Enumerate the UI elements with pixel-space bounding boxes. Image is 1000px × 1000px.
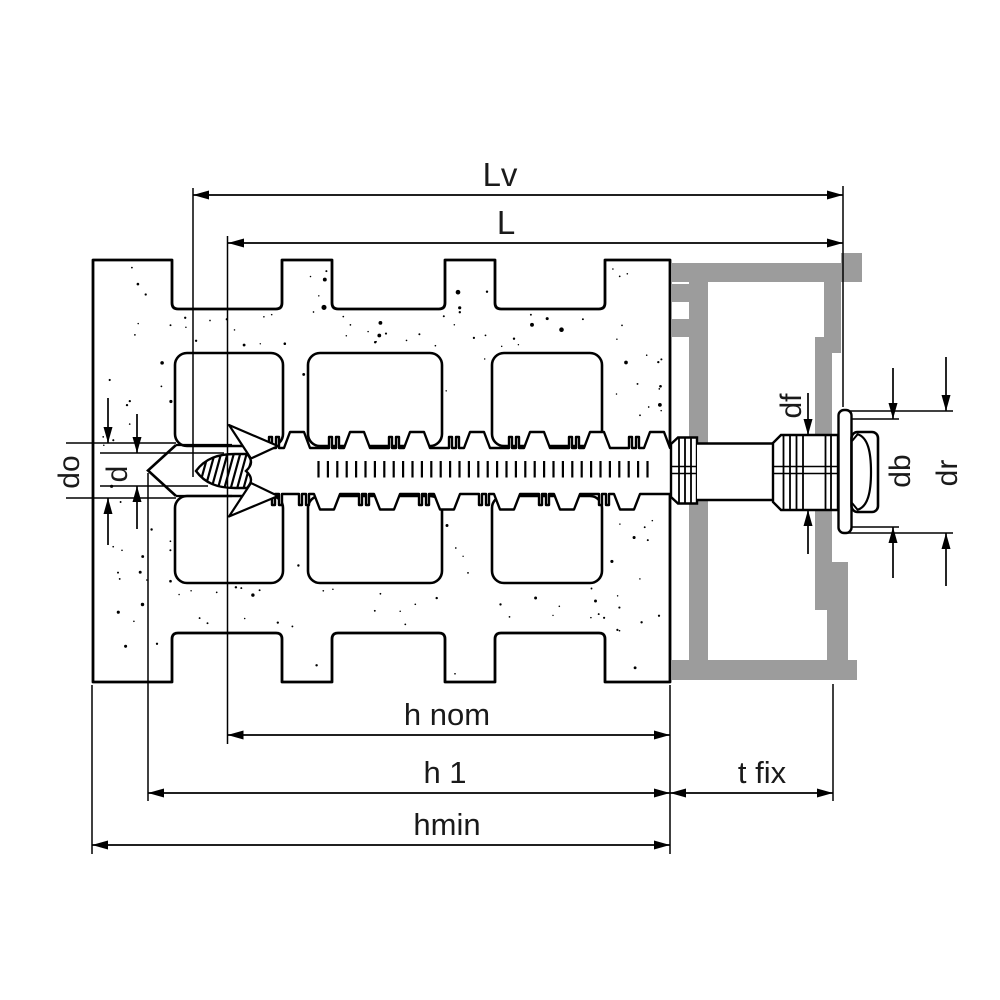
- speckle-dot: [485, 335, 487, 337]
- speckle-dot: [445, 390, 446, 391]
- speckle-dot: [129, 400, 131, 402]
- speckle-dot: [240, 587, 242, 589]
- speckle-dot: [559, 606, 561, 608]
- speckle-dot: [619, 276, 621, 278]
- screw-washer: [839, 410, 852, 533]
- speckle-dot: [501, 346, 502, 347]
- speckle-dot: [406, 340, 408, 342]
- speckle-dot: [582, 318, 584, 320]
- frame-right-wall-above-screw: [815, 353, 832, 437]
- dimension-arrowhead: [804, 510, 813, 526]
- speckle-dot: [346, 335, 348, 337]
- speckle-dot: [399, 611, 401, 613]
- speckle-dot: [509, 616, 511, 618]
- speckle-dot: [639, 414, 641, 416]
- speckle-dot: [169, 549, 171, 551]
- brick-cell: [175, 496, 283, 583]
- screw-hex-head: [852, 432, 879, 512]
- speckle-dot: [150, 528, 152, 530]
- speckle-dot: [418, 333, 420, 335]
- speckle-dot: [627, 273, 629, 275]
- speckle-dot: [660, 410, 662, 412]
- speckle-dot: [119, 578, 121, 580]
- plug-smooth-shaft: [697, 444, 774, 501]
- speckle-dot: [612, 268, 614, 270]
- speckle-dot: [325, 270, 327, 272]
- speckle-dot: [216, 592, 218, 594]
- speckle-dot: [185, 327, 187, 329]
- speckle-dot: [291, 625, 293, 627]
- speckle-dot: [318, 295, 319, 296]
- speckle-dot: [131, 267, 133, 269]
- speckle-dot: [458, 306, 461, 309]
- speckle-dot: [598, 613, 600, 615]
- speckle-dot: [436, 597, 438, 599]
- dimension-arrowhead: [654, 789, 670, 798]
- speckle-dot: [379, 321, 383, 325]
- speckle-dot: [404, 624, 406, 626]
- dimension-arrowhead: [817, 789, 833, 798]
- speckle-dot: [117, 611, 120, 614]
- speckle-dot: [244, 618, 246, 620]
- speckle-dot: [160, 361, 164, 365]
- speckle-dot: [109, 379, 111, 381]
- speckle-dot: [284, 342, 287, 345]
- speckle-dot: [126, 404, 128, 406]
- dimension-label: dr: [931, 460, 964, 487]
- speckle-dot: [170, 540, 172, 542]
- speckle-dot: [178, 594, 180, 596]
- dimension-arrowhead: [92, 841, 108, 850]
- speckle-dot: [552, 615, 553, 616]
- speckle-dot: [618, 607, 620, 609]
- dimension-label: hmin: [413, 807, 480, 842]
- speckle-dot: [117, 572, 119, 574]
- speckle-dot: [454, 324, 456, 326]
- speckle-dot: [624, 361, 628, 365]
- speckle-dot: [594, 600, 597, 603]
- speckle-dot: [170, 324, 172, 326]
- speckle-dot: [184, 317, 186, 319]
- speckle-dot: [112, 439, 114, 441]
- frame-left-tab: [672, 319, 689, 337]
- speckle-dot: [377, 334, 381, 338]
- speckle-dot: [634, 666, 637, 669]
- speckle-dot: [639, 578, 641, 580]
- speckle-dot: [621, 325, 623, 327]
- dimension-label: h 1: [423, 755, 466, 790]
- speckle-dot: [310, 276, 312, 278]
- speckle-dot: [243, 344, 246, 347]
- frame-top-end-flange: [841, 253, 862, 282]
- speckle-dot: [619, 523, 620, 524]
- speckle-dot: [141, 555, 144, 558]
- frame-right-step: [815, 337, 841, 353]
- speckle-dot: [414, 603, 416, 605]
- speckle-dot: [616, 393, 618, 395]
- speckle-dot: [454, 673, 456, 675]
- dimension-arrowhead: [889, 527, 898, 543]
- speckle-dot: [350, 324, 352, 326]
- speckle-dot: [367, 331, 368, 332]
- speckle-dot: [546, 317, 549, 320]
- speckle-dot: [616, 629, 618, 631]
- frame-left-tab: [672, 284, 689, 302]
- speckle-dot: [112, 546, 114, 548]
- speckle-dot: [263, 316, 265, 318]
- speckle-dot: [658, 388, 660, 390]
- frame-top-bar: [672, 263, 862, 282]
- speckle-dot: [129, 423, 131, 425]
- speckle-dot: [455, 547, 457, 549]
- frame-bottom-bar: [672, 660, 857, 680]
- speckle-dot: [616, 338, 617, 339]
- speckle-dot: [156, 643, 158, 645]
- dimension-arrowhead: [942, 395, 951, 411]
- speckle-dot: [446, 524, 449, 527]
- dimension-arrowhead: [827, 191, 843, 200]
- dimension-label: L: [497, 204, 515, 241]
- speckle-dot: [124, 645, 127, 648]
- frame-right-block: [815, 562, 848, 610]
- speckle-dot: [133, 621, 135, 623]
- speckle-dot: [260, 343, 261, 344]
- speckle-dot: [652, 520, 654, 522]
- brick-cell: [175, 353, 283, 446]
- dimension-label: do: [53, 455, 86, 488]
- speckle-dot: [499, 603, 501, 605]
- speckle-dot: [161, 386, 163, 388]
- speckle-dot: [473, 337, 475, 339]
- dimension-arrowhead: [654, 841, 670, 850]
- dimension-label: h nom: [404, 697, 490, 732]
- speckle-dot: [646, 354, 648, 356]
- dimension-label: t fix: [738, 755, 787, 790]
- speckle-dot: [380, 593, 382, 595]
- speckle-dot: [342, 316, 344, 318]
- dimension-arrowhead: [228, 731, 244, 740]
- speckle-dot: [467, 572, 469, 574]
- speckle-dot: [435, 345, 437, 347]
- speckle-dot: [271, 314, 273, 316]
- dimension-label: d: [101, 466, 134, 483]
- dimension-arrowhead: [148, 789, 164, 798]
- anchor-installation-drawing: LvLh nomh 1t fixhmindoddfdbdr: [0, 0, 1000, 1000]
- speckle-dot: [234, 329, 236, 331]
- dimension-arrowhead: [670, 789, 686, 798]
- speckle-dot: [443, 315, 445, 317]
- speckle-dot: [658, 403, 662, 407]
- speckle-dot: [659, 385, 662, 388]
- speckle-dot: [484, 358, 485, 359]
- speckle-dot: [321, 305, 326, 310]
- speckle-dot: [137, 283, 140, 286]
- speckle-dot: [103, 445, 105, 447]
- speckle-dot: [141, 603, 144, 606]
- speckle-dot: [637, 383, 639, 385]
- speckle-dot: [603, 617, 605, 619]
- speckle-dot: [385, 333, 387, 335]
- brick-cell: [492, 353, 602, 446]
- speckle-dot: [647, 539, 649, 541]
- speckle-dot: [530, 314, 532, 316]
- speckle-dot: [633, 536, 636, 539]
- speckle-dot: [518, 344, 519, 345]
- speckle-dot: [534, 597, 537, 600]
- speckle-dot: [559, 327, 564, 332]
- speckle-dot: [591, 588, 593, 590]
- speckle-dot: [322, 590, 324, 592]
- speckle-dot: [199, 617, 201, 619]
- speckle-dot: [313, 311, 315, 313]
- speckle-dot: [459, 311, 461, 313]
- speckle-dot: [590, 617, 592, 619]
- speckle-dot: [190, 590, 192, 592]
- speckle-dot: [277, 621, 279, 623]
- speckle-dot: [610, 560, 613, 563]
- speckle-dot: [332, 589, 334, 591]
- speckle-dot: [644, 526, 646, 528]
- speckle-dot: [640, 621, 642, 623]
- speckle-dot: [259, 589, 261, 591]
- speckle-dot: [302, 373, 305, 376]
- speckle-dot: [530, 323, 534, 327]
- speckle-dot: [617, 595, 618, 596]
- dimension-arrowhead: [654, 731, 670, 740]
- speckle-dot: [251, 593, 254, 596]
- speckle-dot: [235, 586, 237, 588]
- speckle-dot: [169, 400, 172, 403]
- speckle-dot: [134, 334, 136, 336]
- drawing-canvas: LvLh nomh 1t fixhmindoddfdbdr: [0, 0, 1000, 1000]
- speckle-dot: [209, 320, 211, 322]
- speckle-dot: [462, 556, 463, 557]
- speckle-dot: [374, 341, 376, 343]
- speckle-dot: [323, 278, 327, 282]
- speckle-dot: [120, 501, 122, 503]
- speckle-dot: [513, 338, 515, 340]
- frame-right-foot: [827, 610, 848, 662]
- plug-collar: [671, 438, 697, 504]
- speckle-dot: [374, 610, 376, 612]
- speckle-dot: [658, 615, 660, 617]
- speckle-dot: [139, 571, 142, 574]
- speckle-dot: [456, 290, 461, 295]
- speckle-dot: [657, 361, 659, 363]
- speckle-dot: [102, 436, 104, 438]
- speckle-dot: [486, 291, 488, 293]
- dimension-arrowhead: [193, 191, 209, 200]
- speckle-dot: [121, 550, 123, 552]
- dimension-arrowhead: [827, 239, 843, 248]
- dimension-label: Lv: [483, 156, 518, 193]
- frame-right-wall-below-screw: [815, 511, 832, 562]
- speckle-dot: [660, 358, 662, 360]
- dimension-arrowhead: [942, 533, 951, 549]
- speckle-dot: [297, 564, 299, 566]
- speckle-dot: [315, 664, 317, 666]
- speckle-dot: [169, 580, 172, 583]
- speckle-dot: [145, 293, 147, 295]
- dimension-label: db: [884, 454, 917, 487]
- speckle-dot: [137, 323, 138, 324]
- dimension-arrowhead: [804, 419, 813, 435]
- speckle-dot: [207, 622, 209, 624]
- speckle-dot: [195, 340, 197, 342]
- speckle-dot: [648, 406, 650, 408]
- speckle-dot: [619, 630, 621, 632]
- dimension-label: df: [775, 393, 808, 419]
- dimension-arrowhead: [228, 239, 244, 248]
